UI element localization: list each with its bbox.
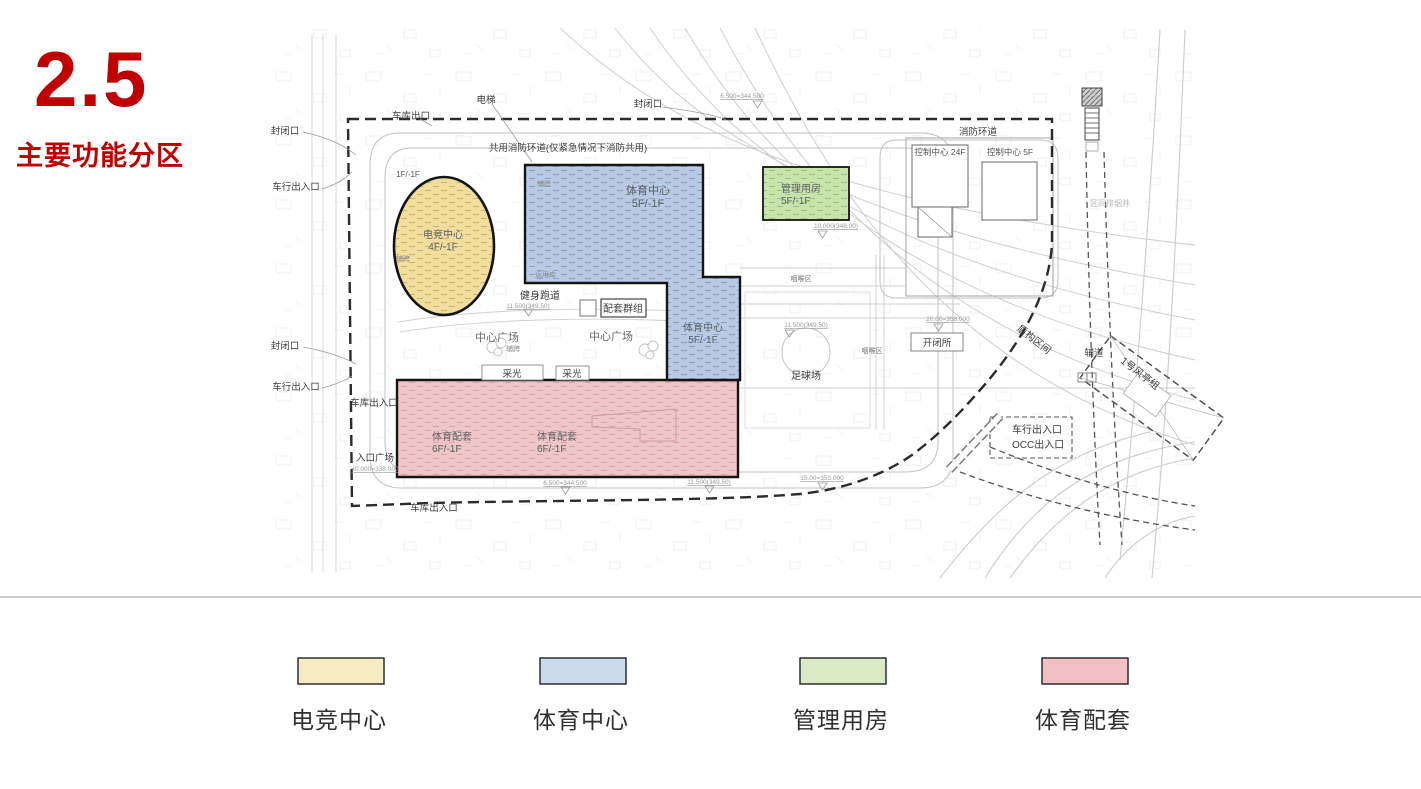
zone-support-name-1: 体育配套 <box>432 430 472 443</box>
elev-fitness-track: 11.500(349.50) <box>506 303 550 310</box>
legend-swatch-management <box>800 658 886 684</box>
divider-line <box>0 596 1421 598</box>
elev-bottom-2: 11.500(349.50) <box>687 479 731 486</box>
label-fire-ring: 消防环道 <box>959 126 998 138</box>
legend-label-sports: 体育中心 <box>533 701 631 735</box>
label-fitness-track: 健身跑道 <box>520 289 560 302</box>
label-central-plaza-1: 中心广场 <box>475 330 519 344</box>
slide-number: 2.5 <box>34 40 148 118</box>
site-plan: 车库出口 电梯 封闭口 共用消防环道(仅紧急情况下消防共用) 消防环道 1F/-… <box>0 0 1421 596</box>
elev-management: 10.000(348.00) <box>814 223 858 230</box>
legend-swatch-esports <box>298 658 384 684</box>
label-aux-span-1: 辅跨 <box>537 179 551 188</box>
legend-item-management: 管理用房 <box>793 657 891 735</box>
label-operation-depot: 运用库 <box>535 270 556 279</box>
label-switch-station: 开闭所 <box>923 337 952 349</box>
label-garage-exit-top: 车库出口 <box>392 110 430 122</box>
zone-sports-support <box>397 380 738 477</box>
label-shared-fire-ring: 共用消防环道(仅紧急情况下消防共用) <box>489 142 647 154</box>
legend-swatch-sports <box>540 658 626 684</box>
label-daylight-1: 采光 <box>502 368 522 380</box>
label-daylight-2: 采光 <box>562 368 582 380</box>
legend-item-support: 体育配套 <box>1035 657 1133 735</box>
label-aux-span-3: 辅跨 <box>506 344 520 353</box>
label-vehicle-entrance-left1: 车行出入口 <box>272 181 320 193</box>
zone-support-floors-1: 6F/-1F <box>432 444 461 455</box>
label-throat-area-1: 咽喉区 <box>791 274 812 283</box>
control-center-5f-building <box>982 162 1037 220</box>
label-closed-opening-top: 封闭口 <box>634 98 663 110</box>
label-aux-span-2: 辅跨 <box>396 254 410 263</box>
elev-switch-station: 20.00=358.000 <box>926 316 970 323</box>
elev-bottom-3: 15.00=353.000 <box>800 475 844 482</box>
label-elevator: 电梯 <box>476 94 496 106</box>
elev-football: 11.500(349.50) <box>784 322 828 329</box>
label-floors-1f: 1F/-1F <box>396 170 420 179</box>
zone-management-floors: 5F/-1F <box>781 196 810 207</box>
zone-esports-floors: 4F/-1F <box>428 242 457 253</box>
zone-support-floors-2: 6F/-1F <box>537 444 566 455</box>
zone-sports-floors-2: 5F/-1F <box>688 335 717 346</box>
label-football-field: 足球场 <box>791 369 821 382</box>
zone-management-name: 管理用房 <box>781 182 821 195</box>
label-garage-entrance-left: 车库出入口 <box>350 397 398 409</box>
slide: 2.5 主要功能分区 <box>0 0 1421 789</box>
zone-sports-name-2: 体育中心 <box>683 321 723 334</box>
label-control-center-24f: 控制中心 24F <box>914 147 965 157</box>
label-central-plaza-2: 中心广场 <box>589 329 633 343</box>
legend-label-support: 体育配套 <box>1035 701 1133 735</box>
label-closed-opening-left1: 封闭口 <box>271 125 300 137</box>
elev-bottom-1: 6.500=344.500 <box>543 480 587 487</box>
legend-label-management: 管理用房 <box>793 701 891 735</box>
elev-entrance-plaza: ±0.000=338.000 <box>351 466 399 473</box>
elev-top: 6.500=344.500 <box>720 93 764 100</box>
label-garage-entrance-bottom: 车库出入口 <box>410 502 458 514</box>
label-aux-road: 辅道 <box>1084 347 1104 359</box>
zone-esports-name: 电竞中心 <box>423 228 463 241</box>
zone-support-name-2: 体育配套 <box>537 430 577 443</box>
legend-label-esports: 电竞中心 <box>291 701 389 735</box>
label-vehicle-entrance-left2: 车行出入口 <box>272 381 320 393</box>
label-occ-entrance: OCC出入口 <box>1012 438 1064 451</box>
small-square-box <box>580 300 596 316</box>
label-smoke-shaft: 区间排烟井 <box>1090 198 1130 208</box>
legend-item-esports: 电竞中心 <box>291 657 389 735</box>
legend-swatch-support <box>1042 658 1128 684</box>
label-entrance-plaza: 入口广场 <box>356 452 394 464</box>
label-control-center-5f: 控制中心 5F <box>987 147 1033 157</box>
label-throat-area-2: 咽喉区 <box>862 346 883 355</box>
label-support-cluster: 配套群组 <box>603 302 643 315</box>
legend-item-sports: 体育中心 <box>533 657 631 735</box>
zone-sports-floors-1: 5F/-1F <box>632 198 665 210</box>
label-closed-opening-left2: 封闭口 <box>271 340 300 352</box>
zone-sports-name-1: 体育中心 <box>626 183 670 197</box>
label-vehicle-entrance-occ: 车行出入口 <box>1012 423 1062 436</box>
page-title: 主要功能分区 <box>16 134 184 173</box>
